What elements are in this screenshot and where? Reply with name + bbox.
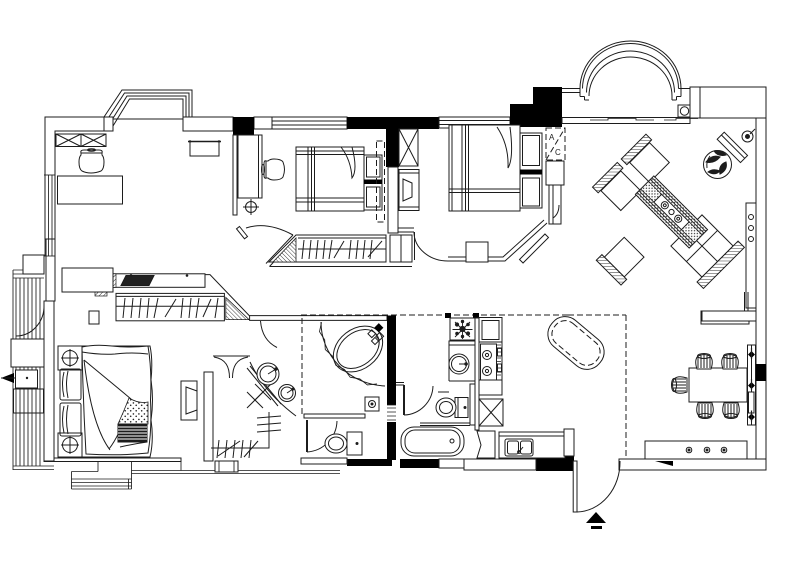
svg-text:C: C bbox=[555, 148, 561, 157]
svg-text:A: A bbox=[549, 133, 555, 142]
